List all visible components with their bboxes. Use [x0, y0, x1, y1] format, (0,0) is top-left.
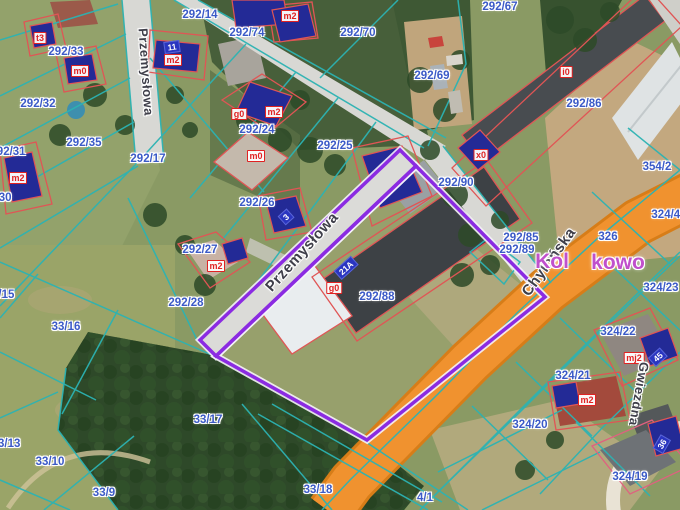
map-vector-overlay — [0, 0, 680, 510]
map-canvas[interactable]: 292/14292/74292/70292/67292/69292/86292/… — [0, 0, 680, 510]
